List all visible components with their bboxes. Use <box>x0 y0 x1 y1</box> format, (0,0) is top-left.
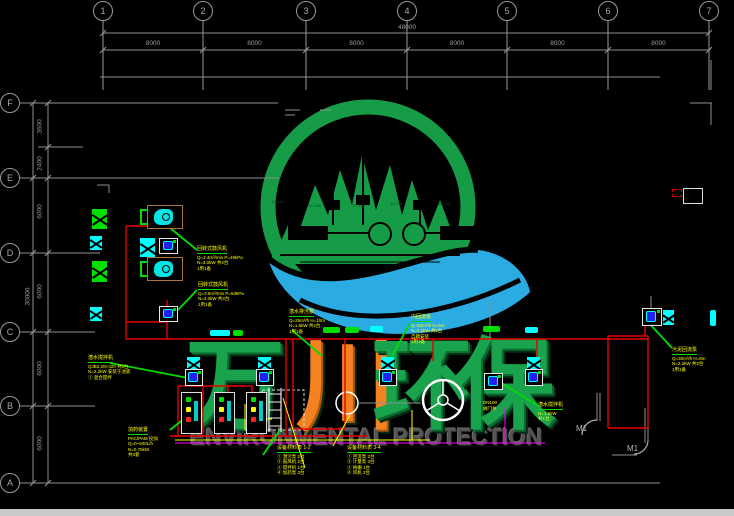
annotation-title: 设备材料表 3-4 <box>347 446 381 453</box>
annotation-line: N=2.2kW 安装于池底 <box>88 369 130 375</box>
equipment-bar <box>525 327 538 333</box>
annotation-line: 1用1备 <box>289 329 325 335</box>
annotation-line: DN100 <box>483 400 497 406</box>
pump-motor-symbol <box>642 308 662 326</box>
pump-motor-symbol <box>525 369 543 386</box>
annotation-title: 回转式鼓风机 <box>197 247 227 254</box>
annotation-line: ④ 风机 2台 <box>347 470 381 476</box>
annotation-line: 1用1备 <box>672 367 706 373</box>
equipment-bar <box>210 330 230 336</box>
dosing-unit-symbol <box>246 392 267 434</box>
door-label: M1 <box>576 424 587 433</box>
equipment-bar <box>483 326 500 332</box>
louver-x-symbol <box>92 209 107 229</box>
annotation-line: N=1.5kW 共2台 <box>289 323 325 329</box>
annotation-title: 潜水搅拌机 <box>88 356 113 363</box>
fan-x-symbol <box>140 238 155 257</box>
annotation-note: 潜水搅拌机QJB2.2/8-320 共2台N=2.2kW 安装于池底① 混合搅拌 <box>88 355 130 380</box>
equipment-bar <box>345 327 359 333</box>
equipment-bar <box>233 330 243 336</box>
annotation-note: 设备材料表 3-4① 回流泵 2台② 计量泵 3台③ 格栅 1台④ 风机 2台 <box>347 445 381 476</box>
annotation-title: 加药装置 <box>128 428 148 435</box>
equipment-bar <box>323 327 340 333</box>
linework-layer <box>0 0 734 516</box>
annotation-title: 污泥回流泵 <box>672 348 697 355</box>
annotation-title: 回转式鼓风机 <box>198 283 228 290</box>
fan-x-symbol <box>663 310 674 325</box>
annotation-line: 1用1备 <box>411 339 445 345</box>
blower-unit-symbol <box>147 257 183 281</box>
equipment-bar <box>370 326 383 332</box>
annotation-line: 1用1备 <box>198 302 244 308</box>
cad-canvas: ENVIRONMENTAL PROTECTION 180002800038000… <box>0 0 734 516</box>
pump-motor-symbol <box>185 369 203 386</box>
dosing-unit-symbol <box>181 392 202 434</box>
annotation-title: 内回流泵 <box>411 315 431 322</box>
annotation-note: 潜水排污泵Q=25m³/h H=10mN=1.5kW 共2台1用1备 <box>289 309 325 334</box>
blower-unit-symbol <box>147 205 183 229</box>
annotation-title: 潜水排污泵 <box>289 310 314 317</box>
leader-line <box>178 290 197 310</box>
pump-motor-symbol <box>159 238 178 254</box>
bottom-bar <box>0 509 734 516</box>
pump-motor-symbol <box>484 373 503 390</box>
bracket-symbol <box>140 261 147 277</box>
small-dashed-box <box>672 189 682 197</box>
pipe-yellow <box>333 415 350 446</box>
louver-x-symbol <box>92 261 107 282</box>
annotation-line: ① 混合搅拌 <box>88 375 130 381</box>
pump-motor-symbol <box>379 369 397 386</box>
door-label: M1 <box>627 444 638 453</box>
equipment-bar <box>710 310 716 326</box>
annotation-line: ④ 加药泵 3台 <box>277 470 311 476</box>
small-fan-x-symbol <box>90 307 102 321</box>
small-equipment-box <box>683 188 703 204</box>
annotation-note: 潜水搅拌机N=1.5kW共1台 <box>538 402 563 422</box>
annotation-note: 设备材料表 1-2① 潜污泵 2台② 鼓风机 2台③ 搅拌机 1台④ 加药泵 3… <box>277 445 311 476</box>
annotation-line: 阀门井 <box>483 406 497 412</box>
annotation-line: 1用1备 <box>197 266 243 272</box>
annotation-note: 污泥回流泵Q=30m³/h H=8mN=2.2kW 共2台1用1备 <box>672 347 706 372</box>
annotation-note: DN100阀门井 <box>483 400 497 411</box>
annotation-note: 加药装置PAC/PAM 投加Q=0~500L/hN=0.75kW共3套 <box>128 427 158 458</box>
annotation-line: N=2.2kW 共2台 <box>672 361 706 367</box>
annotation-note: 回转式鼓风机Q=3.5m³/min P=53kPaN=4.0kW 共2台1用1备 <box>198 282 244 307</box>
bracket-symbol <box>140 209 147 225</box>
annotation-note: 回转式鼓风机Q=2.4m³/min P=49kPaN=3.0kW 共2台1用1备 <box>197 246 243 271</box>
annotation-title: 设备材料表 1-2 <box>277 446 311 453</box>
annotation-line: N=2.2kW 共2台 <box>411 328 445 334</box>
dosing-unit-symbol <box>214 392 235 434</box>
small-fan-x-symbol <box>90 236 102 250</box>
pump-motor-symbol <box>256 369 274 386</box>
platform-dashed-rect <box>262 390 304 430</box>
tank-circle-icon <box>336 392 358 414</box>
annotation-note: 内回流泵Q=50m³/h H=5mN=2.2kW 共2台自耦安装1用1备 <box>411 314 445 345</box>
annotation-line: 共1台 <box>538 416 563 422</box>
annotation-line: 共3套 <box>128 452 158 458</box>
pump-motor-symbol <box>159 306 178 322</box>
annotation-title: 潜水搅拌机 <box>538 403 563 410</box>
